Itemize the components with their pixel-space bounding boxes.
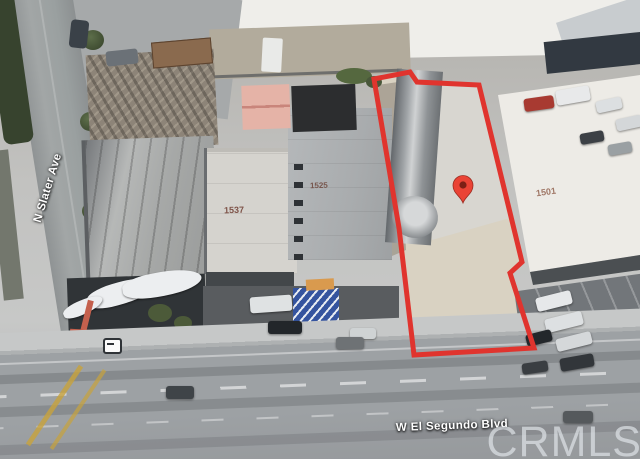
location-pin-icon: [453, 176, 473, 204]
crmls-watermark: CRMLS: [486, 418, 640, 459]
aerial-photo: 1537 1525 1501 N Slater Ave W El Segundo…: [0, 0, 640, 459]
parcel-outline: [374, 72, 534, 355]
parcel-overlay: [0, 0, 640, 459]
